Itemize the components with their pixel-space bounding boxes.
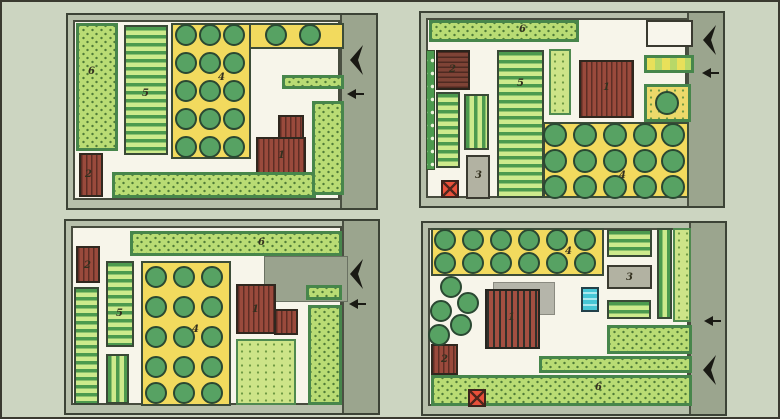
- tree-circle: [175, 80, 197, 102]
- garden-plan-top-right-lawn-top-number: 6: [519, 25, 526, 35]
- tree-circle: [440, 276, 462, 298]
- tree-circle: [633, 175, 657, 199]
- tree-circle: [543, 175, 567, 199]
- garden-plan-bottom-right-beds-col: [657, 228, 672, 319]
- garden-plan-bottom-left-vegetable-beds: [106, 261, 134, 347]
- tree-circle: [430, 300, 452, 322]
- tree-circle: [199, 24, 221, 46]
- garden-plan-top-right-beds-left: [436, 92, 460, 168]
- garden-plan-bottom-right-red-x-marker: [468, 389, 486, 407]
- tree-circle: [173, 266, 195, 288]
- tree-circle: [573, 149, 597, 173]
- tree-circle: [428, 324, 450, 346]
- tree-circle: [201, 326, 223, 348]
- tree-circle: [201, 296, 223, 318]
- tree-circle: [199, 80, 221, 102]
- garden-plan-top-left-lawn-left-number: 6: [88, 67, 95, 77]
- tree-circle: [223, 24, 245, 46]
- garden-plan-top-left: 62541: [66, 13, 378, 210]
- tree-circle: [655, 91, 679, 115]
- tree-circle: [574, 252, 596, 274]
- garden-plan-bottom-left: 62541: [64, 219, 380, 415]
- garden-plan-bottom-right-beds-midright: [607, 300, 651, 319]
- tree-circle: [173, 356, 195, 378]
- tree-circle: [543, 123, 567, 147]
- garden-plan-top-right-shrub-strip: [426, 50, 435, 170]
- tree-circle: [175, 52, 197, 74]
- garden-plan-bottom-left-lawn-top: [130, 231, 342, 256]
- garden-plan-top-right-lawn-col-small: [549, 49, 571, 115]
- street-strip: [342, 221, 378, 413]
- tree-circle: [573, 123, 597, 147]
- tree-circle: [462, 252, 484, 274]
- tree-circle: [223, 80, 245, 102]
- tree-circle: [201, 382, 223, 404]
- garden-plan-bottom-left-lawn-top-number: 6: [258, 238, 265, 248]
- garden-plan-top-right-vegetable-beds: [497, 50, 544, 198]
- tree-circle: [450, 314, 472, 336]
- tree-circle: [457, 292, 479, 314]
- garden-plan-top-right-lawn-top: [429, 20, 579, 42]
- garden-plan-top-left-lawn-right: [312, 101, 344, 195]
- garden-plan-bottom-right-lawn-col: [673, 228, 691, 322]
- garden-plan-bottom-right-orchard-number: 4: [565, 247, 572, 257]
- garden-plan-bottom-left-vegetable-beds-number: 5: [116, 309, 123, 319]
- entrance-arrow-small-icon: [702, 68, 720, 78]
- tree-circle: [518, 229, 540, 251]
- tree-circle: [175, 136, 197, 158]
- entrance-arrow-small-icon: [347, 89, 365, 99]
- tree-circle: [173, 296, 195, 318]
- garden-plan-top-left-house-wing: [278, 115, 304, 139]
- tree-circle: [490, 229, 512, 251]
- tree-circle: [633, 123, 657, 147]
- tree-circle: [265, 24, 287, 46]
- tree-circle: [518, 252, 540, 274]
- garden-plan-bottom-left-house-wing: [274, 309, 298, 335]
- garden-plan-bottom-left-lawn-strip-small: [306, 285, 342, 300]
- tree-circle: [173, 382, 195, 404]
- tree-circle: [199, 136, 221, 158]
- garden-plan-bottom-left-beds-left: [74, 287, 99, 405]
- garden-plans-illustration: 625416235146254143162: [0, 0, 780, 419]
- tree-circle: [145, 382, 167, 404]
- tree-circle: [299, 24, 321, 46]
- garden-plan-top-right-orchard-number: 4: [619, 171, 626, 181]
- tree-circle: [661, 123, 685, 147]
- garden-plan-bottom-right-shed-number: 2: [441, 355, 448, 365]
- garden-plan-top-right-shed-number: 2: [449, 65, 456, 75]
- tree-circle: [145, 356, 167, 378]
- tree-circle: [490, 252, 512, 274]
- tree-circle: [201, 266, 223, 288]
- tree-circle: [145, 266, 167, 288]
- tree-circle: [223, 136, 245, 158]
- garden-plan-top-right-paved-pad: [646, 20, 693, 47]
- garden-plan-top-left-orchard-ext: [249, 23, 344, 49]
- garden-plan-top-right: 623514: [419, 11, 725, 208]
- garden-plan-top-right-red-x-marker: [441, 180, 459, 198]
- tree-circle: [661, 149, 685, 173]
- tree-circle: [574, 229, 596, 251]
- tree-circle: [434, 229, 456, 251]
- street-strip: [340, 15, 376, 208]
- tree-circle: [223, 52, 245, 74]
- tree-circle: [661, 175, 685, 199]
- tree-circle: [175, 108, 197, 130]
- tree-circle: [199, 52, 221, 74]
- garden-plan-bottom-right-lawn-right: [607, 325, 692, 354]
- garden-plan-bottom-right: 43162: [421, 221, 727, 416]
- garden-plan-bottom-right-lawn-bottom-number: 6: [595, 383, 602, 393]
- garden-plan-top-left-orchard-main-number: 4: [218, 73, 225, 83]
- tree-circle: [462, 229, 484, 251]
- garden-plan-bottom-left-beds-small: [106, 354, 129, 404]
- tree-circle: [199, 108, 221, 130]
- garden-plan-top-left-house-number: 1: [278, 151, 285, 161]
- garden-plan-top-right-vegetable-beds-number: 5: [517, 79, 524, 89]
- garden-plan-bottom-left-lawn-right: [308, 305, 342, 405]
- garden-plan-bottom-right-house-number: 1: [508, 313, 515, 323]
- garden-plan-top-left-vegetable-beds-number: 5: [142, 89, 149, 99]
- garden-plan-top-left-lawn-left: [76, 23, 118, 151]
- tree-circle: [434, 252, 456, 274]
- tree-circle: [223, 108, 245, 130]
- garden-plan-top-right-flower-strip: [644, 55, 694, 73]
- garden-plan-bottom-left-house-number: 1: [252, 305, 259, 315]
- garden-plan-top-left-lawn-bottom: [112, 172, 316, 198]
- tree-circle: [201, 356, 223, 378]
- garden-plan-bottom-right-beds-topright: [607, 229, 652, 257]
- tree-circle: [633, 149, 657, 173]
- garden-plan-bottom-left-shed-number: 2: [84, 261, 91, 271]
- garden-plan-bottom-right-pool: [581, 287, 599, 312]
- tree-circle: [175, 24, 197, 46]
- tree-circle: [145, 296, 167, 318]
- garden-plan-top-right-patio-number: 3: [475, 171, 482, 181]
- entrance-arrow-small-icon: [704, 316, 722, 326]
- tree-circle: [543, 149, 567, 173]
- garden-plan-top-left-shed-number: 2: [85, 170, 92, 180]
- garden-plan-bottom-right-patio-number: 3: [626, 273, 633, 283]
- garden-plan-top-right-house-number: 1: [603, 83, 610, 93]
- entrance-arrow-small-icon: [349, 299, 367, 309]
- tree-circle: [603, 123, 627, 147]
- garden-plan-bottom-left-orchard-number: 4: [192, 325, 199, 335]
- garden-plan-bottom-left-lawn-square: [236, 339, 296, 405]
- garden-plan-top-right-beds-small: [464, 94, 489, 150]
- tree-circle: [573, 175, 597, 199]
- tree-circle: [145, 326, 167, 348]
- garden-plan-bottom-right-lawn-mid: [539, 356, 692, 373]
- garden-plan-top-left-lawn-strip-small: [282, 75, 344, 89]
